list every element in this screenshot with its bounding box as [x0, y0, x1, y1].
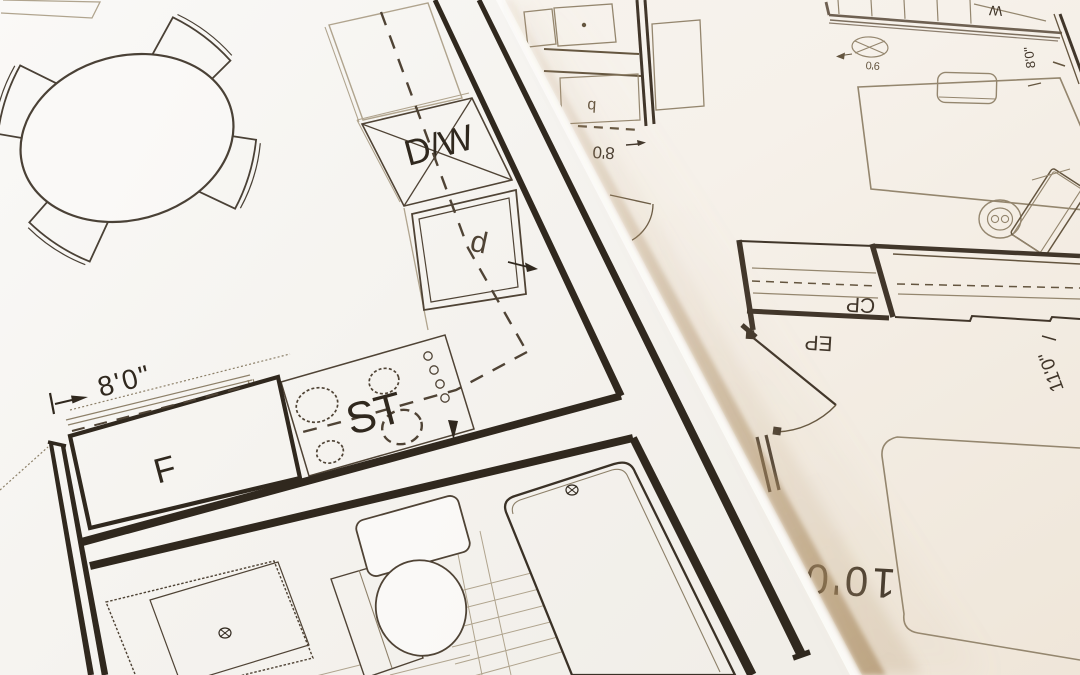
svg-text:8'0": 8'0" [1021, 46, 1039, 70]
svg-text:EP: EP [804, 330, 833, 355]
svg-text:CP: CP [845, 292, 876, 317]
svg-text:W: W [988, 3, 1003, 20]
svg-text:9'0: 9'0 [865, 59, 880, 72]
